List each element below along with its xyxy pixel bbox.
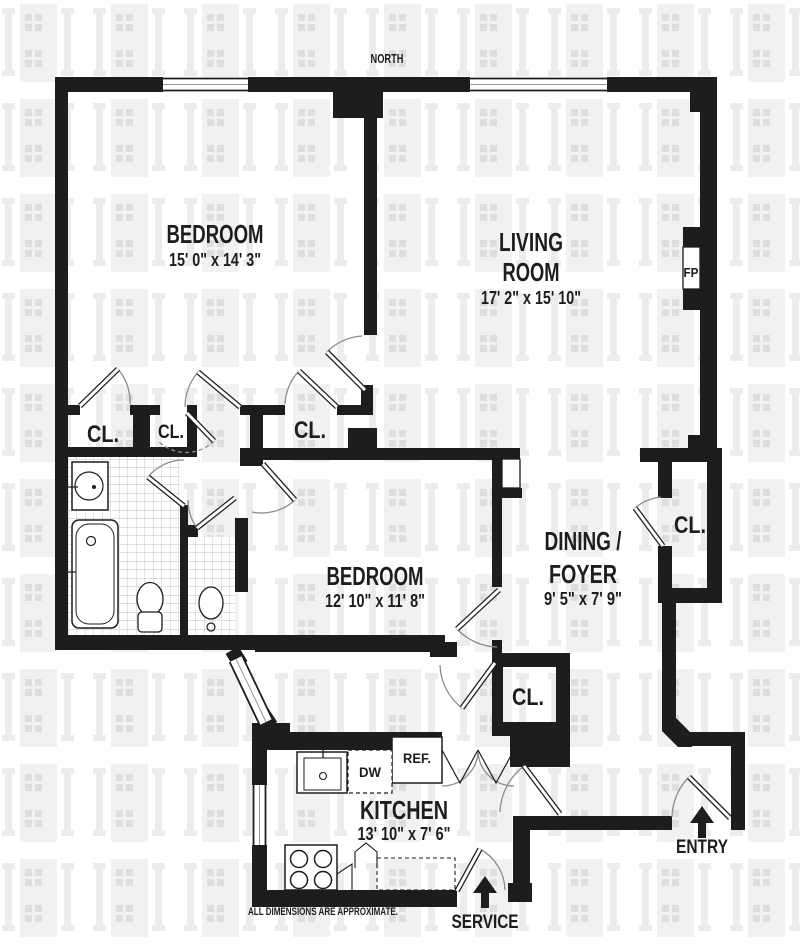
label-living-line1: LIVING — [499, 227, 563, 257]
kitchen-window — [252, 785, 267, 845]
label-bedroom1-name: BEDROOM — [167, 219, 264, 249]
stove — [285, 845, 337, 890]
label-disclaimer: ALL DIMENSIONS ARE APPROXIMATE. — [248, 906, 398, 918]
label-north: NORTH — [371, 52, 404, 66]
bedroom1-window — [163, 77, 248, 92]
label-refrigerator: REF. — [403, 751, 431, 766]
label-entry: ENTRY — [676, 837, 728, 858]
floor-plan-page: NORTH BEDROOM 15' 0" x 14' 3" LIVING ROO… — [0, 0, 800, 950]
label-closet-bedroom1-small: CL. — [158, 422, 184, 443]
label-closet-bedroom1-left: CL. — [87, 421, 119, 448]
label-closet-bedroom1-mid: CL. — [294, 417, 326, 444]
bathtub — [72, 520, 118, 628]
label-dishwasher: DW — [359, 765, 381, 780]
label-dining-dims: 9' 5" x 7' 9" — [544, 588, 622, 609]
floor-plan: NORTH BEDROOM 15' 0" x 14' 3" LIVING ROO… — [0, 0, 800, 950]
label-bedroom2-dims: 12' 10" x 11' 8" — [325, 590, 425, 611]
label-kitchen-name: KITCHEN — [360, 795, 448, 825]
living-room-window — [470, 77, 607, 92]
wall-niche — [502, 459, 520, 488]
label-dining-line2: FOYER — [549, 559, 617, 589]
label-living-line2: ROOM — [503, 257, 560, 287]
label-bedroom1-dims: 15' 0" x 14' 3" — [169, 249, 261, 270]
label-fireplace: FP — [684, 266, 699, 280]
label-kitchen-dims: 13' 10" x 7' 6" — [358, 823, 451, 844]
toilet-main — [137, 583, 163, 633]
label-dining-line1: DINING / — [545, 526, 622, 556]
label-bedroom2-name: BEDROOM — [327, 561, 424, 591]
label-closet-hall: CL. — [512, 684, 544, 711]
label-closet-dining: CL. — [674, 512, 706, 539]
label-living-dims: 17' 2" x 15' 10" — [481, 287, 581, 308]
label-service: SERVICE — [452, 912, 519, 933]
